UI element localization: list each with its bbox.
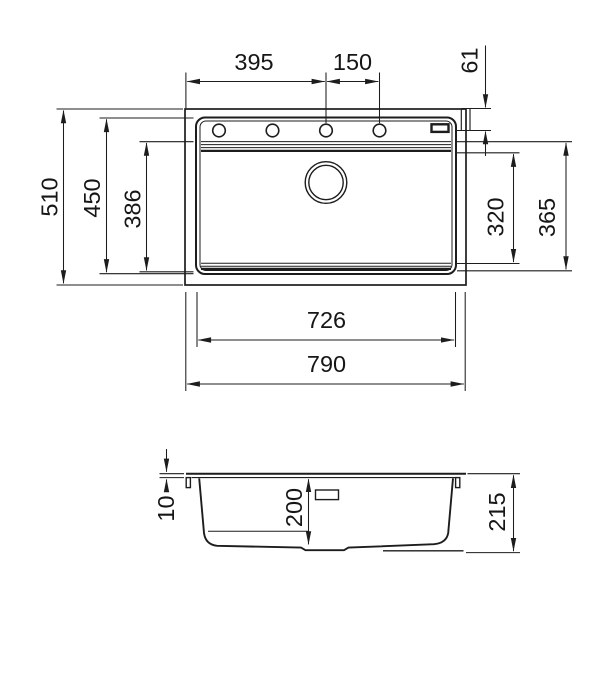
dim-label-215: 215 <box>484 492 510 531</box>
worktop-outline <box>185 109 466 285</box>
dim-510: 510 <box>37 109 184 285</box>
overflow-slot <box>432 124 449 132</box>
section-view <box>186 474 466 551</box>
dim-61: 61 <box>457 46 492 157</box>
sink-technical-drawing: 395 150 61 510 450 386 320 <box>0 0 600 689</box>
dim-label-61: 61 <box>457 47 483 73</box>
drawing-page: 395 150 61 510 450 386 320 <box>0 0 600 689</box>
section-overflow <box>316 490 339 500</box>
dim-label-395: 395 <box>234 49 273 75</box>
dim-label-10: 10 <box>153 495 179 521</box>
drain-inner-circle <box>309 165 343 199</box>
tap-holes <box>213 124 386 137</box>
drain-outer-circle <box>305 162 347 204</box>
dim-215: 215 <box>466 474 520 553</box>
dim-200: 200 <box>281 479 309 544</box>
dim-label-200: 200 <box>281 488 307 527</box>
dim-label-726: 726 <box>307 307 346 333</box>
tap-hole-2 <box>266 124 279 137</box>
dim-365: 365 <box>457 142 572 271</box>
upper-grooves <box>201 142 451 151</box>
dim-label-320: 320 <box>483 197 509 236</box>
dim-label-150: 150 <box>333 49 372 75</box>
section-left-flange <box>186 478 190 488</box>
section-bowl-profile <box>199 478 453 550</box>
lower-grooves <box>201 263 451 269</box>
dim-label-450: 450 <box>79 178 105 217</box>
dim-150: 150 <box>327 49 379 123</box>
dim-label-365: 365 <box>534 198 560 237</box>
dim-395: 395 <box>186 49 326 123</box>
dim-label-790: 790 <box>307 351 346 377</box>
dim-label-386: 386 <box>120 189 146 228</box>
dim-10: 10 <box>153 449 184 522</box>
tap-hole-1 <box>213 124 226 137</box>
tap-hole-3 <box>320 124 333 137</box>
sink-rim-outer <box>196 118 456 275</box>
section-right-flange <box>456 478 460 488</box>
sink-rim-inner <box>200 121 452 271</box>
dim-label-510: 510 <box>37 177 63 216</box>
dim-386: 386 <box>120 142 194 272</box>
tap-hole-4 <box>373 124 386 137</box>
top-view <box>185 109 470 285</box>
dim-726: 726 <box>197 292 456 347</box>
